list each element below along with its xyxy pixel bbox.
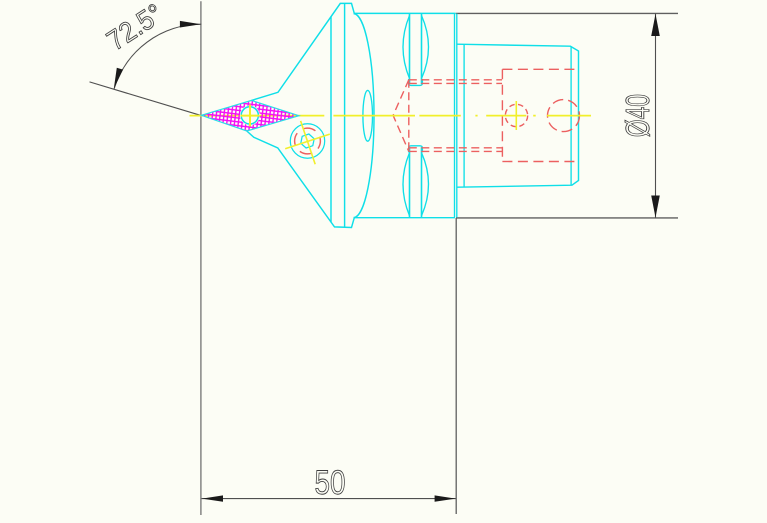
svg-text:Ø40: Ø40 — [619, 94, 656, 137]
svg-text:50: 50 — [315, 464, 346, 502]
